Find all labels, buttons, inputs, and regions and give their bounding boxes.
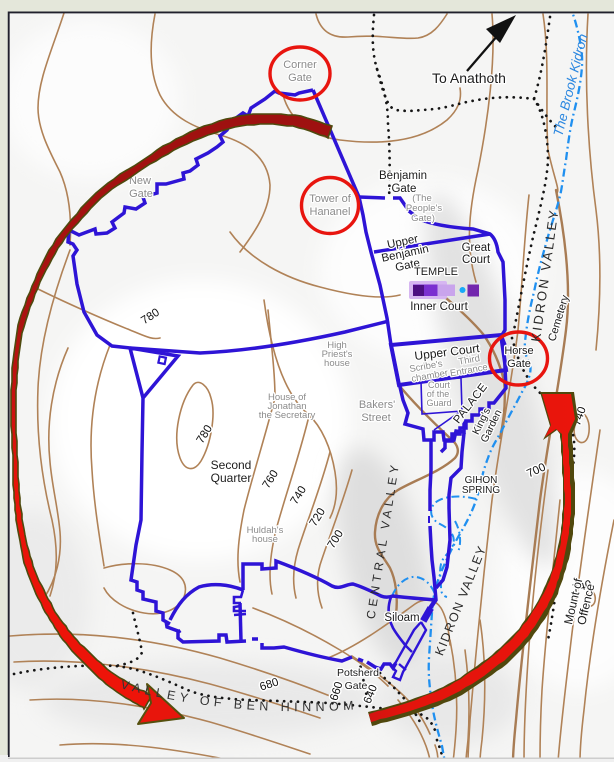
svg-text:Inner Court: Inner Court [410, 301, 468, 313]
svg-text:Hananel: Hananel [310, 206, 351, 218]
svg-text:To Anathoth: To Anathoth [432, 70, 506, 86]
svg-text:Gate: Gate [507, 358, 531, 370]
svg-text:Potsherd: Potsherd [337, 667, 379, 679]
svg-text:Gate: Gate [345, 680, 368, 692]
svg-text:Gate): Gate) [411, 213, 435, 224]
svg-text:house: house [252, 534, 278, 545]
svg-text:Tower of: Tower of [309, 193, 352, 205]
svg-text:Court: Court [462, 254, 491, 266]
svg-text:Great: Great [462, 242, 492, 254]
svg-text:Second: Second [211, 458, 252, 472]
svg-text:Horse: Horse [504, 345, 533, 357]
svg-text:SPRING: SPRING [462, 485, 501, 496]
svg-text:Siloam: Siloam [384, 612, 419, 624]
svg-text:Guard: Guard [426, 398, 451, 408]
svg-text:Street: Street [361, 412, 390, 424]
svg-text:house: house [324, 358, 350, 369]
svg-text:Bakers': Bakers' [359, 399, 395, 411]
svg-text:the Secretary: the Secretary [259, 410, 316, 421]
svg-text:TEMPLE: TEMPLE [414, 266, 458, 278]
svg-text:Benjamin: Benjamin [379, 170, 427, 182]
svg-text:Gate: Gate [129, 188, 153, 200]
svg-text:Quarter: Quarter [211, 471, 252, 485]
svg-text:Gate: Gate [288, 72, 312, 84]
svg-text:Corner: Corner [283, 59, 317, 71]
